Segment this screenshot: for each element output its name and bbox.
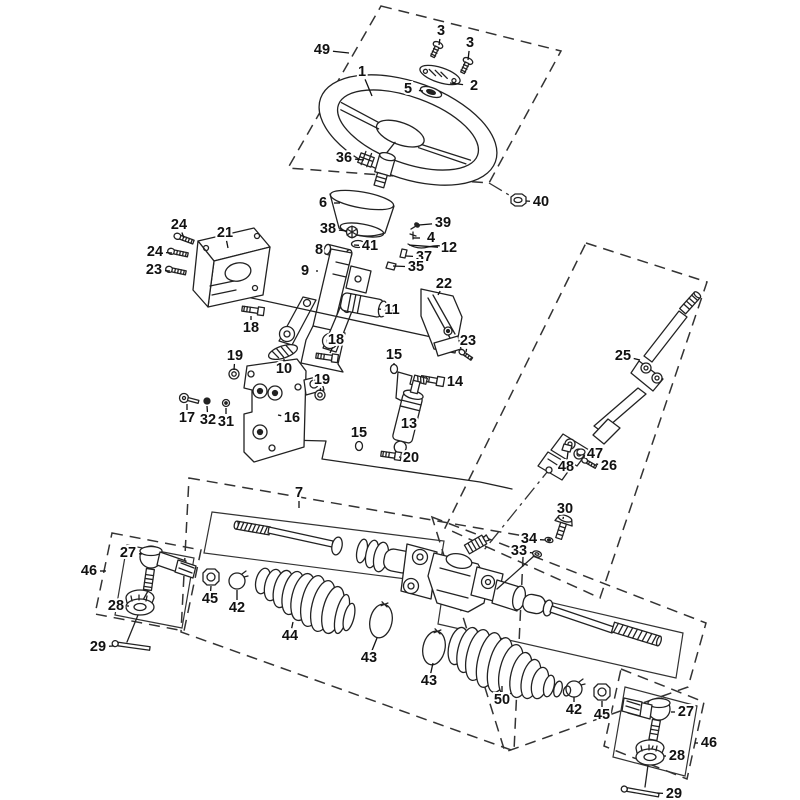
screw — [458, 56, 474, 75]
stud-line — [645, 765, 648, 787]
callout-30: 30 — [557, 501, 573, 517]
screw — [411, 222, 420, 232]
callout-18: 18 — [328, 332, 344, 348]
callout-23: 23 — [460, 333, 476, 349]
callout-leader-3 — [439, 39, 440, 45]
cotter-pin — [112, 640, 150, 651]
callout-leader-39 — [419, 224, 432, 225]
callout-20: 20 — [403, 450, 419, 466]
u-joint — [631, 361, 663, 391]
callout-42: 42 — [229, 600, 245, 616]
callout-32: 32 — [200, 412, 216, 428]
leader-33-to-pinion — [497, 556, 534, 589]
callout-21: 21 — [217, 225, 233, 241]
callout-46: 46 — [81, 563, 97, 579]
callout-13: 13 — [401, 416, 417, 432]
callout-33: 33 — [511, 543, 527, 559]
lock-nut — [594, 684, 610, 700]
bearing — [347, 226, 358, 238]
o-ring — [356, 442, 363, 451]
bolt — [173, 232, 194, 245]
bolt — [550, 513, 575, 541]
callout-3: 3 — [466, 35, 474, 51]
steering-wheel — [304, 53, 512, 207]
screw — [428, 40, 444, 59]
callout-leader-5 — [419, 90, 423, 91]
callout-38: 38 — [320, 221, 336, 237]
boot-clamp — [367, 600, 396, 640]
washer — [223, 400, 230, 407]
callout-28: 28 — [669, 748, 685, 764]
callout-18: 18 — [243, 320, 259, 336]
callout-48: 48 — [558, 459, 574, 475]
callout-1: 1 — [358, 64, 366, 80]
callout-leader-49 — [333, 51, 349, 53]
castle-nut — [636, 740, 664, 765]
column-support-bracket — [421, 289, 462, 356]
steering-exploded-diagram: 4933152366403839414123735892424232122231… — [0, 0, 800, 800]
callout-42: 42 — [566, 702, 582, 718]
callout-28: 28 — [108, 598, 124, 614]
callout-leader-43 — [372, 638, 377, 651]
callout-26: 26 — [601, 458, 617, 474]
callout-44: 44 — [282, 628, 298, 644]
callout-leader-16 — [278, 415, 281, 416]
callout-25: 25 — [615, 348, 631, 364]
callout-15: 15 — [386, 347, 402, 363]
callout-3: 3 — [437, 23, 445, 39]
centerline-to-nut-40 — [489, 183, 514, 198]
snap-clip — [229, 571, 248, 589]
bolt — [458, 348, 473, 361]
callout-19: 19 — [227, 348, 243, 364]
callout-leader-25 — [634, 359, 640, 360]
callout-45: 45 — [594, 707, 610, 723]
callout-31: 31 — [218, 414, 234, 430]
bolt — [242, 305, 265, 316]
callout-16: 16 — [284, 410, 300, 426]
callout-10: 10 — [276, 361, 292, 377]
screenshot-canvas: 4933152366403839414123735892424232122231… — [0, 0, 800, 800]
callout-43: 43 — [421, 673, 437, 689]
centerline-shaft-to-pinion — [484, 466, 552, 550]
callout-4: 4 — [427, 230, 435, 246]
screw — [178, 392, 199, 406]
intermediate-shaft — [538, 291, 702, 480]
callout-12: 12 — [441, 240, 457, 256]
tie-rod-end-right — [622, 698, 670, 751]
callout-41: 41 — [362, 238, 378, 254]
callout-2: 2 — [470, 78, 478, 94]
callout-5: 5 — [404, 81, 412, 97]
callout-leader-36 — [355, 159, 364, 160]
callout-7: 7 — [295, 485, 303, 501]
callout-24: 24 — [147, 244, 163, 260]
callout-leader-38 — [339, 230, 347, 231]
bellows-left — [253, 567, 357, 636]
nut — [315, 390, 325, 400]
callout-leader-19 — [320, 388, 321, 391]
column-upper-cover — [329, 187, 395, 240]
callout-15: 15 — [351, 425, 367, 441]
nut — [229, 369, 239, 379]
castle-nut — [126, 590, 154, 615]
callout-35: 35 — [408, 259, 424, 275]
callout-50: 50 — [494, 692, 510, 708]
callout-27: 27 — [678, 704, 694, 720]
callout-19: 19 — [314, 372, 330, 388]
callout-43: 43 — [361, 650, 377, 666]
callout-leader-23 — [466, 349, 467, 352]
boot-clamp — [420, 627, 449, 667]
lock-nut — [203, 569, 219, 585]
callout-8: 8 — [315, 242, 323, 258]
callout-14: 14 — [447, 374, 463, 390]
callout-45: 45 — [202, 591, 218, 607]
callout-36: 36 — [336, 150, 352, 166]
callout-29: 29 — [90, 639, 106, 655]
callout-24: 24 — [171, 217, 187, 233]
callout-leader-35 — [393, 266, 405, 267]
callout-22: 22 — [436, 276, 452, 292]
clip — [400, 249, 407, 258]
callout-40: 40 — [533, 194, 549, 210]
washer — [204, 398, 210, 404]
callout-17: 17 — [179, 410, 195, 426]
cotter-pin — [621, 786, 659, 799]
callout-9: 9 — [301, 263, 309, 279]
callout-11: 11 — [384, 302, 399, 318]
callout-49: 49 — [314, 42, 330, 58]
callout-46: 46 — [701, 735, 717, 751]
pinion-input-shaft — [464, 533, 490, 554]
callout-23: 23 — [146, 262, 162, 278]
washer — [577, 449, 585, 455]
callout-6: 6 — [319, 195, 327, 211]
callout-39: 39 — [435, 215, 451, 231]
o-ring — [391, 365, 398, 374]
bushing — [562, 444, 572, 452]
callout-27: 27 — [120, 545, 136, 561]
stud-line — [127, 615, 138, 642]
nut — [511, 194, 526, 206]
bellows-right — [445, 625, 572, 700]
callout-29: 29 — [666, 786, 682, 800]
washer — [544, 537, 553, 544]
